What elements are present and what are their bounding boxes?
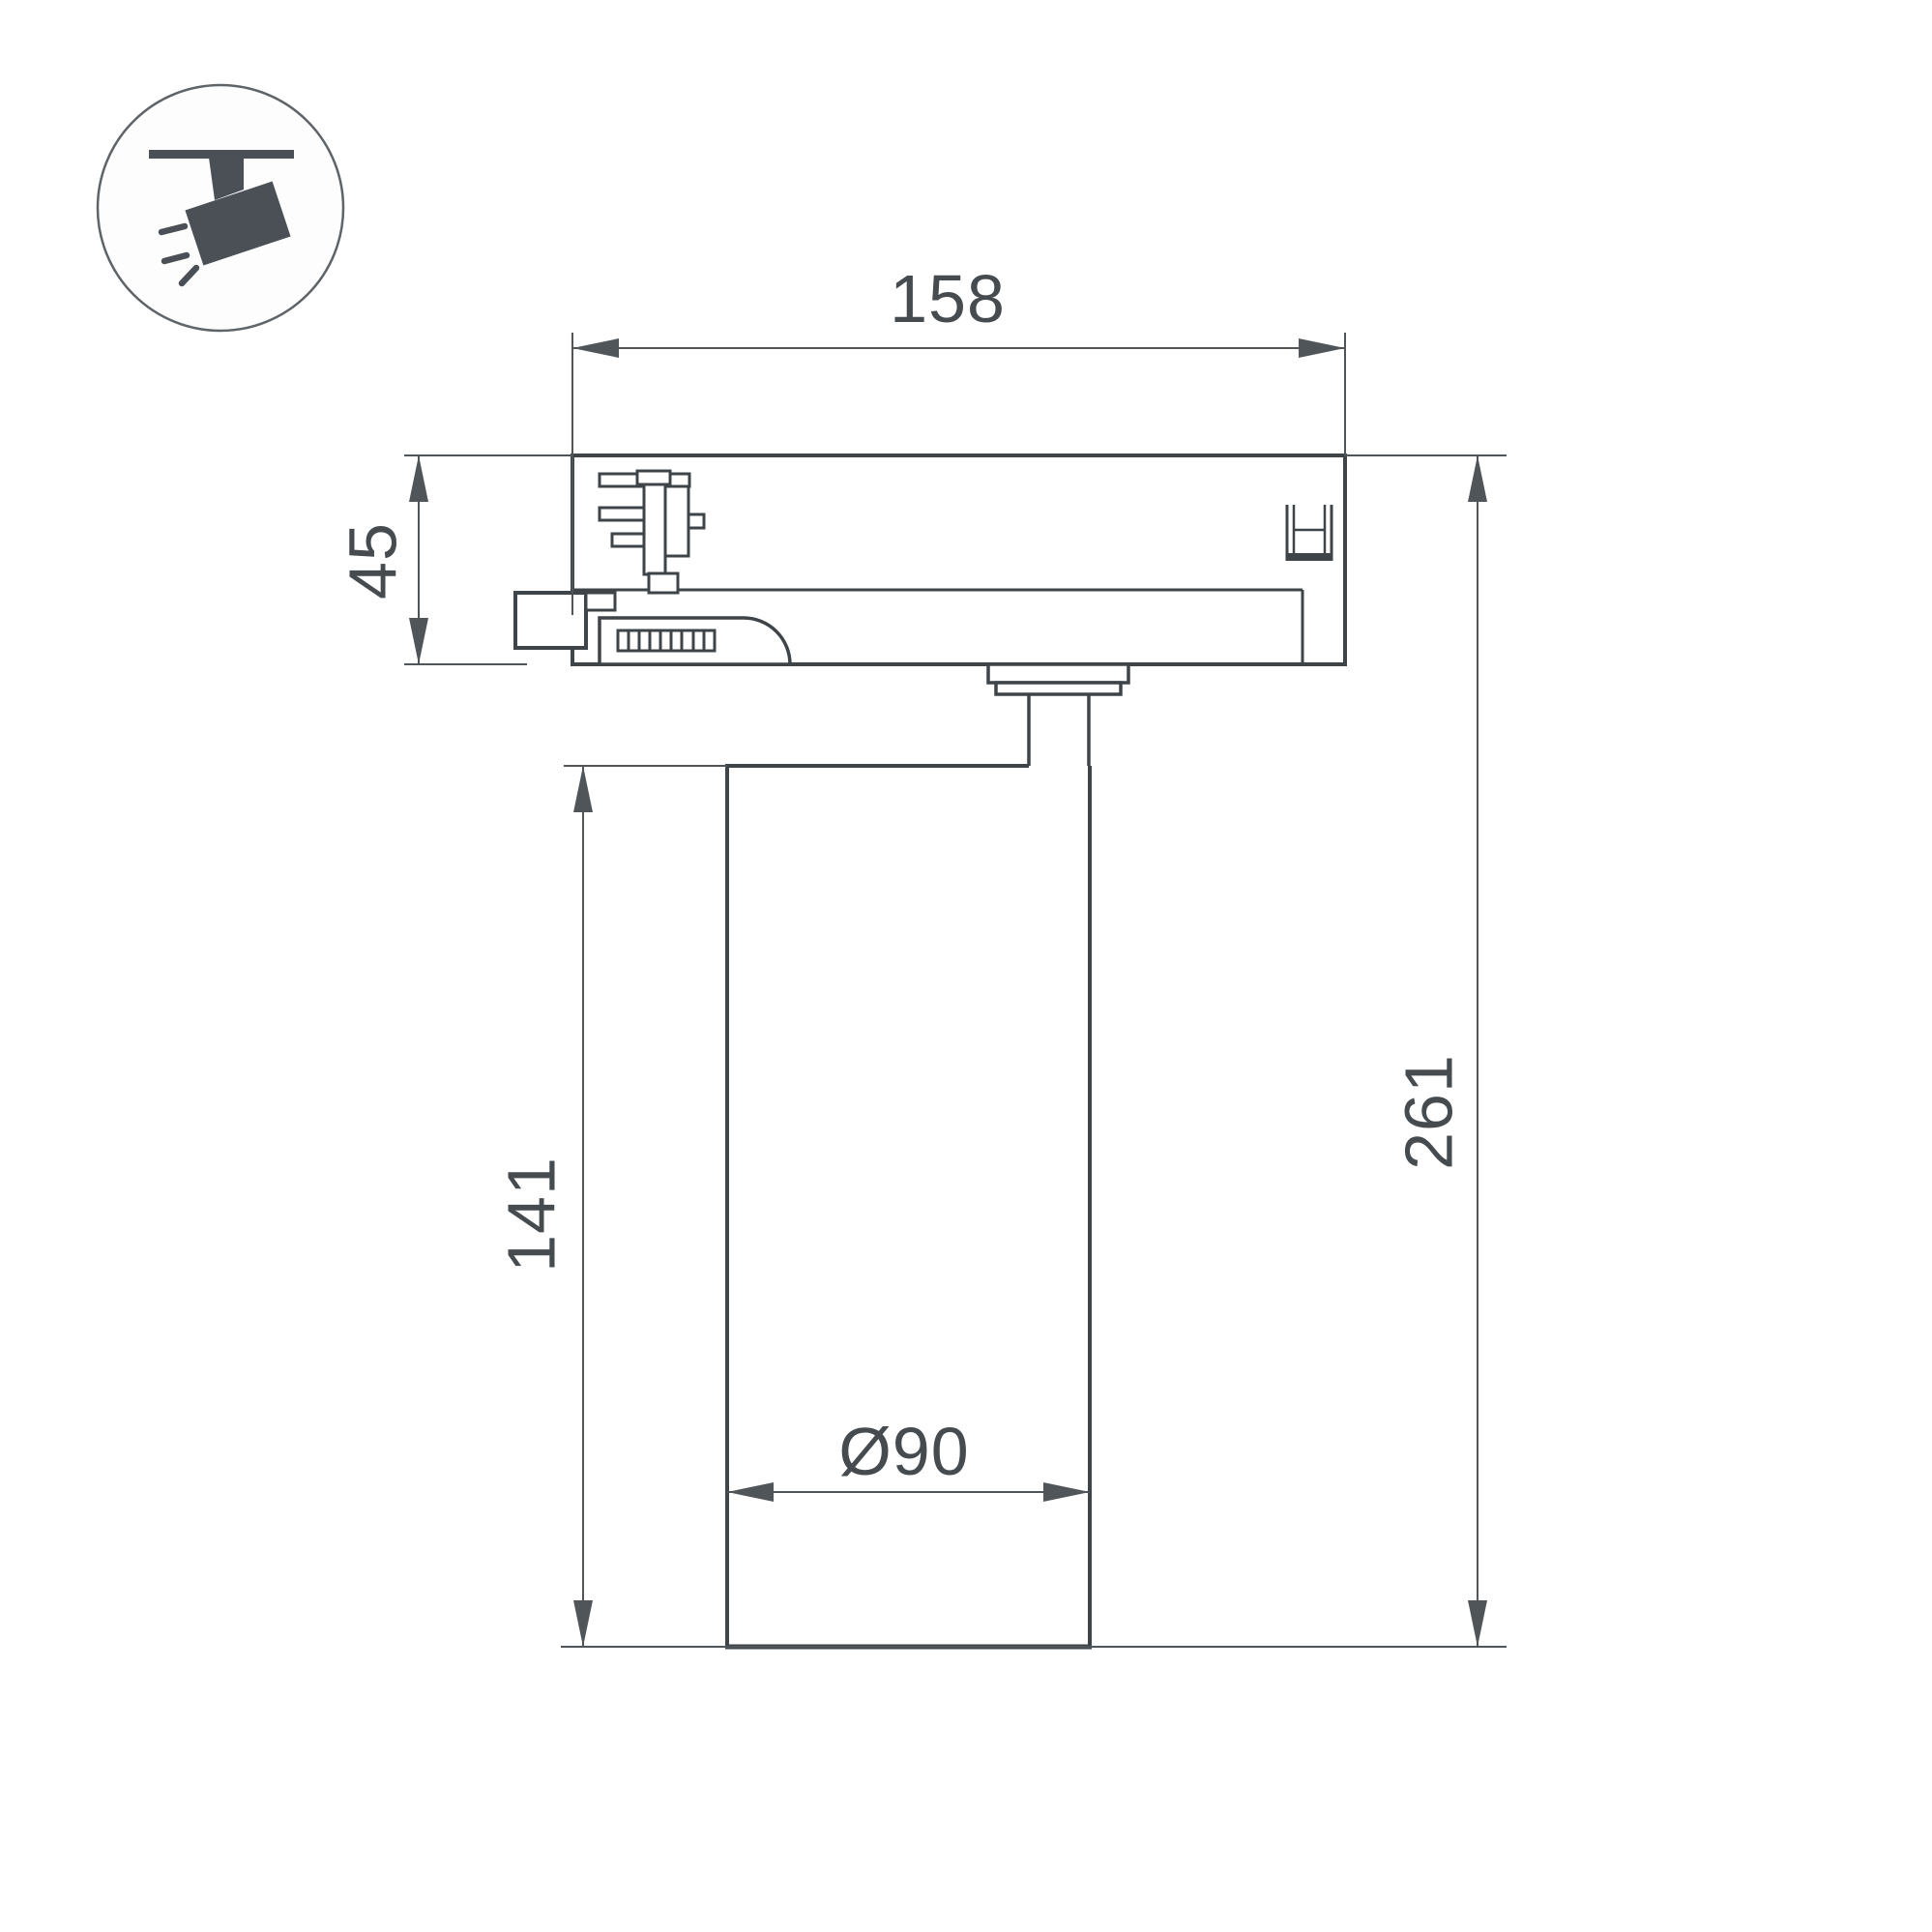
contact-body-step bbox=[688, 514, 704, 528]
contact-prong-middle bbox=[600, 508, 644, 520]
cylinder-outline bbox=[727, 766, 1090, 1647]
dim-lamp-body-height-label: 141 bbox=[494, 1156, 570, 1273]
contact-foot bbox=[649, 573, 678, 593]
adapter-latch-box bbox=[515, 593, 586, 648]
contact-body bbox=[665, 486, 688, 556]
contact-screw-bar bbox=[644, 478, 665, 574]
stem-flange-lower bbox=[996, 683, 1121, 694]
lamp-cylinder bbox=[725, 766, 1092, 1647]
drawing-canvas: 158 45 141 261 Ø90 bbox=[0, 0, 1932, 1932]
adapter-latch-notch bbox=[586, 593, 615, 610]
dim-lamp-body-height bbox=[564, 766, 727, 1647]
adjustment-grill bbox=[618, 630, 715, 651]
dim-track-adapter-height-label: 45 bbox=[336, 522, 411, 600]
legend-icon bbox=[98, 85, 343, 331]
dim-total-height bbox=[1345, 455, 1507, 1647]
dim-total-height-label: 261 bbox=[1391, 1054, 1467, 1170]
contact-screw-cap bbox=[637, 471, 670, 484]
icon-track-bar bbox=[149, 150, 294, 159]
technical-drawing: 158 45 141 261 Ø90 bbox=[0, 0, 1932, 1932]
track-adapter bbox=[515, 455, 1345, 664]
stem-flange-upper bbox=[988, 664, 1128, 683]
dim-lamp-body-diameter-label: Ø90 bbox=[838, 1414, 969, 1489]
mount-stem bbox=[988, 664, 1128, 766]
dim-track-adapter-width-label: 158 bbox=[890, 261, 1006, 337]
contact-prong-bottom bbox=[612, 534, 644, 546]
